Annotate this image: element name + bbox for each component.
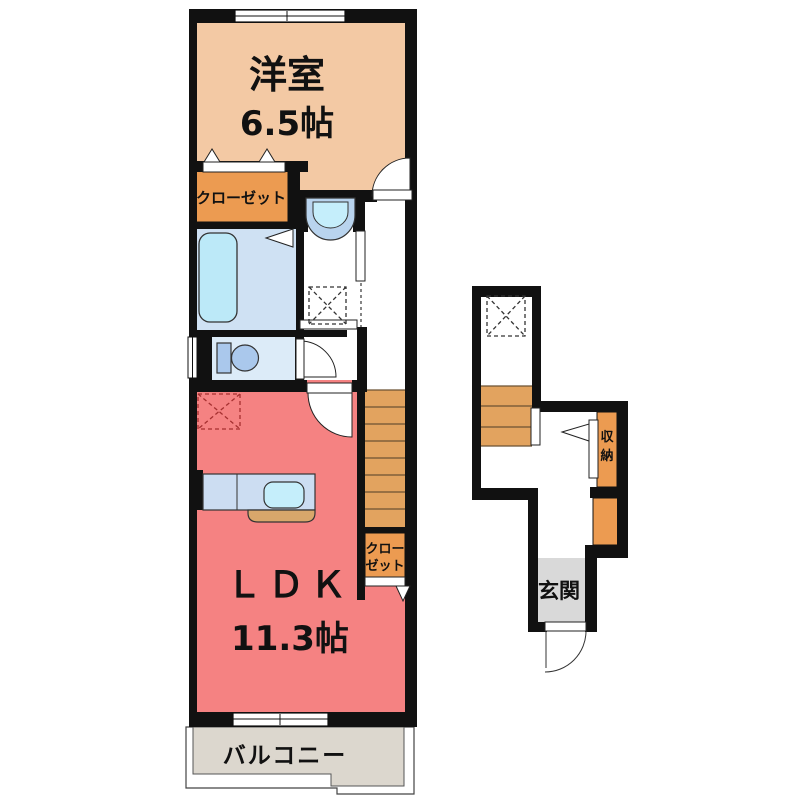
toilet-door-icon bbox=[296, 339, 336, 379]
window-bottom-icon bbox=[233, 713, 328, 726]
wall-segment bbox=[585, 545, 628, 558]
wall-segment bbox=[528, 622, 547, 632]
closet-side-label-line2: ゼット bbox=[365, 558, 404, 574]
storage-label-char2: 納 bbox=[600, 448, 613, 464]
wall-segment bbox=[585, 558, 597, 632]
entrance-door-icon bbox=[545, 622, 586, 672]
window-top-icon bbox=[235, 10, 345, 22]
balcony-label: バルコニー bbox=[223, 743, 348, 769]
wall-segment bbox=[197, 337, 212, 380]
shoe-cabinet-floor bbox=[593, 498, 618, 545]
storage-door-icon bbox=[562, 420, 598, 478]
bathtub-icon bbox=[199, 233, 237, 322]
wall-segment bbox=[532, 286, 541, 406]
wall-segment bbox=[365, 527, 405, 533]
wall-segment bbox=[472, 286, 481, 500]
wall-segment bbox=[357, 390, 365, 600]
wall-segment bbox=[617, 401, 628, 557]
entrance-label: 玄関 bbox=[538, 579, 580, 603]
western-room-label: 洋室 bbox=[249, 53, 325, 97]
toilet-icon bbox=[217, 343, 259, 373]
stairwell-door-icon bbox=[531, 408, 540, 445]
closet-side-label-line1: クロー bbox=[365, 542, 404, 557]
stairs-lower-floor bbox=[480, 386, 532, 446]
closet-top-label: クローゼット bbox=[196, 189, 286, 207]
wall-segment bbox=[590, 487, 628, 498]
western-room-area: 6.5帖 bbox=[240, 104, 334, 144]
wall-segment bbox=[189, 222, 302, 229]
storage-label-char1: 収 bbox=[600, 430, 614, 445]
window-toilet-icon bbox=[188, 337, 197, 378]
ldk-label: ＬＤＫ bbox=[226, 565, 352, 606]
wall-segment bbox=[189, 380, 307, 392]
wall-segment bbox=[357, 327, 367, 392]
ldk-area: 11.3帖 bbox=[231, 619, 349, 659]
washroom-sliding-door-icon bbox=[300, 231, 365, 329]
wall-segment bbox=[405, 9, 417, 727]
wall-segment bbox=[190, 470, 203, 510]
floor-plan: 洋室 6.5帖 クローゼット ＬＤＫ 11.3帖 クロー ゼット 収 納 玄関 … bbox=[0, 0, 800, 800]
washbasin-icon bbox=[306, 198, 355, 240]
wall-segment bbox=[189, 330, 347, 337]
wall-segment bbox=[532, 401, 628, 412]
stairwell-space-icon bbox=[487, 296, 525, 336]
washer-space-icon bbox=[309, 287, 346, 324]
floor-plan-canvas: 洋室 6.5帖 クローゼット ＬＤＫ 11.3帖 クロー ゼット 収 納 玄関 … bbox=[0, 0, 800, 800]
wall-segment bbox=[528, 493, 538, 632]
wall-segment bbox=[296, 228, 304, 330]
